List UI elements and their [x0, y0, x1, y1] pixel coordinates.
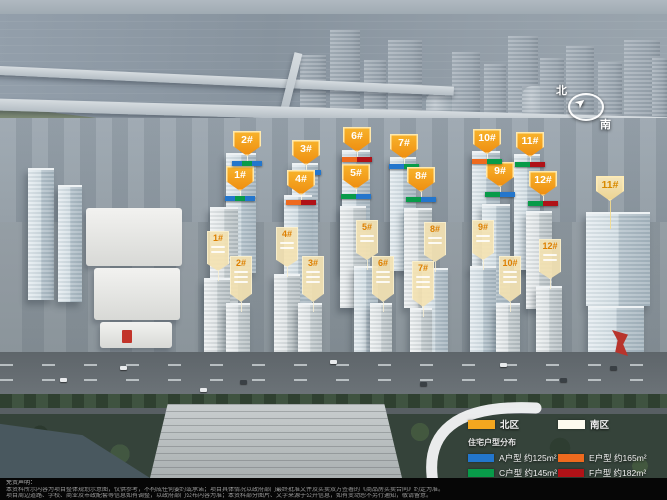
leader-line [287, 267, 288, 277]
building-number-label: 5# [350, 164, 362, 179]
fine-print-line [306, 281, 320, 283]
fine-print-line [280, 247, 294, 249]
car [200, 388, 207, 392]
leader-line [383, 302, 384, 312]
fine-print-line [360, 240, 374, 242]
car [610, 366, 617, 370]
mall-logo-accent [122, 330, 132, 343]
unit-type-segment-A [232, 161, 242, 166]
leader-line [550, 279, 551, 289]
rooftop-unit-type-bar [286, 200, 316, 205]
fine-print-line [476, 235, 490, 237]
rooftop-unit-type-bar [528, 201, 558, 206]
unit-distribution-title: 住宅户型分布 [468, 437, 666, 448]
compass: 北 ➤ 南 [548, 82, 622, 134]
fine-print-line [360, 235, 374, 237]
pin-badge: 4# [287, 170, 315, 195]
pin-badge: 7# [390, 134, 418, 159]
ribbon-badge: 12# [539, 239, 561, 279]
ribbon-badge: 1# [207, 231, 229, 271]
unit-type-segment-C [406, 197, 421, 202]
leader-line [435, 262, 436, 272]
building-tag-south-11: 11# [595, 176, 625, 229]
pin-badge: 10# [473, 129, 501, 154]
building-pin-north-10: 10# [472, 129, 502, 164]
building-pin-north-7: 7# [389, 134, 419, 169]
disclaimer-text: 项目周边道路、学校、商业及市政配套等信息如有调整，以政府部门公布内容为准；本资料… [6, 493, 661, 500]
ribbon-badge: 6# [372, 256, 394, 302]
fine-print-line [428, 242, 442, 244]
building-tag-south-1: 1# [207, 231, 229, 281]
pin-badge: 8# [407, 167, 435, 192]
building-number-label: 10# [499, 256, 521, 268]
unit-a-swatch [468, 454, 494, 462]
unit-a-label: A户型 约125m² [499, 452, 557, 464]
south-zone-swatch [558, 420, 585, 429]
unit-c-swatch [468, 469, 494, 477]
building-pin-north-1: 1# [225, 166, 255, 201]
unit-type-segment-A [389, 164, 404, 169]
background-tower [470, 266, 496, 354]
pin-badge: 9# [486, 162, 514, 187]
unit-type-segment-C [487, 159, 502, 164]
unit-type-segment-F [357, 157, 372, 162]
pin-badge: 6# [343, 127, 371, 152]
fine-print-line [503, 276, 517, 278]
pin-badge: 11# [596, 176, 624, 201]
fine-print-line [376, 276, 390, 278]
car [60, 378, 67, 382]
fine-print-line [428, 237, 442, 239]
rooftop-unit-type-bar [341, 194, 371, 199]
fine-print-line [543, 259, 557, 261]
rooftop-unit-type-bar [485, 192, 515, 197]
compass-north-label: 北 [556, 82, 567, 98]
unit-type-segment-A [225, 196, 235, 201]
legend-units-row-1: A户型 约125m² E户型 约165m² [468, 452, 666, 464]
fine-print-line [234, 276, 248, 278]
fine-print-line [376, 281, 390, 283]
pin-badge: 2# [233, 131, 261, 156]
ribbon-badge: 2# [230, 256, 252, 302]
fine-print-line [280, 242, 294, 244]
building-number-label: 10# [478, 129, 496, 144]
ribbon-badge: 3# [302, 256, 324, 302]
unit-type-segment-C [242, 161, 252, 166]
building-number-label: 1# [207, 231, 229, 243]
fine-print-line [234, 281, 248, 283]
unit-type-segment-C [341, 194, 356, 199]
building-number-label: 4# [276, 227, 298, 239]
fine-print-line [306, 271, 320, 273]
unit-type-segment-F [543, 201, 558, 206]
fine-print-line [211, 251, 225, 253]
disclaimer-bar: 免责声明： 本资料所示内容为项目整体规划示意图，仅供参考，不构成任何要约或承诺；… [0, 478, 667, 500]
unit-type-segment-E [286, 200, 301, 205]
building-number-label: 9# [494, 162, 506, 177]
leader-line [610, 201, 611, 229]
pin-badge: 3# [292, 140, 320, 165]
rooftop-unit-type-bar [406, 197, 436, 202]
unit-type-segment-A [500, 192, 515, 197]
rooftop-unit-type-bar [472, 159, 502, 164]
building-tag-south-10: 10# [499, 256, 521, 312]
building-number-label: 11# [602, 176, 619, 191]
pin-badge: 12# [529, 171, 557, 196]
building-tag-south-3: 3# [302, 256, 324, 312]
building-pin-north-8: 8# [406, 167, 436, 202]
compass-south-label: 南 [600, 116, 611, 132]
fine-print-line [476, 240, 490, 242]
building-number-label: 2# [230, 256, 252, 268]
unit-type-segment-C [528, 201, 543, 206]
fine-print-line [416, 276, 430, 278]
car [500, 363, 507, 367]
pin-badge: 1# [226, 166, 254, 191]
unit-type-segment-C [515, 162, 530, 167]
leader-line [367, 260, 368, 270]
unit-type-segment-C [485, 192, 500, 197]
podium-block [86, 208, 182, 266]
building-tag-south-2: 2# [230, 256, 252, 312]
building-number-label: 4# [295, 170, 307, 185]
building-number-label: 6# [351, 127, 363, 142]
legend-zone-south: 南区 [558, 417, 609, 431]
map-legend: 北区 南区 住宅户型分布 A户型 约125m² E户型 约165m² C户型 约… [468, 417, 666, 482]
building-tag-south-12: 12# [539, 239, 561, 289]
building-pin-north-12: 12# [528, 171, 558, 206]
fine-print-line [376, 271, 390, 273]
building-number-label: 1# [234, 166, 246, 181]
fine-print-line [211, 246, 225, 248]
leader-line [218, 271, 219, 281]
unit-type-segment-F [301, 200, 316, 205]
podium-block [94, 268, 180, 320]
building-number-label: 8# [424, 222, 446, 234]
lane-marking [0, 364, 667, 366]
leader-line [423, 307, 424, 317]
terraced-plaza [150, 404, 402, 478]
fine-print-line [306, 276, 320, 278]
unit-type-segment-E [472, 159, 487, 164]
unit-f-swatch [558, 469, 584, 477]
building-pin-north-6: 6# [342, 127, 372, 162]
podium-block [100, 322, 172, 348]
building-number-label: 3# [300, 140, 312, 155]
legend-unit-e: E户型 约165m² [558, 452, 647, 464]
unit-e-label: E户型 约165m² [589, 452, 647, 464]
building-pin-north-2: 2# [232, 131, 262, 166]
leader-line [313, 302, 314, 312]
building-number-label: 5# [356, 220, 378, 232]
legend-zone-north: 北区 [468, 417, 558, 431]
building-pin-north-9: 9# [485, 162, 515, 197]
ribbon-badge: 5# [356, 220, 378, 260]
building-number-label: 7# [398, 134, 410, 149]
leader-line [483, 260, 484, 270]
ribbon-badge: 8# [424, 222, 446, 262]
building-number-label: 6# [372, 256, 394, 268]
north-zone-label: 北区 [500, 417, 519, 431]
building-number-label: 9# [472, 220, 494, 232]
fine-print-line [416, 286, 430, 288]
site-aerial-rendering: 1#2#3#4#5#6#7#8#9#10#11#12# 1#2#3#4#5#6#… [0, 0, 667, 500]
rooftop-unit-type-bar [342, 157, 372, 162]
background-tower [28, 168, 54, 300]
rooftop-unit-type-bar [232, 161, 262, 166]
building-number-label: 2# [241, 131, 253, 146]
rooftop-unit-type-bar [225, 196, 255, 201]
building-number-label: 3# [302, 256, 324, 268]
car [120, 366, 127, 370]
ribbon-badge: 10# [499, 256, 521, 302]
unit-type-segment-A [421, 197, 436, 202]
ribbon-badge: 4# [276, 227, 298, 267]
leader-line [241, 302, 242, 312]
unit-type-segment-A [245, 196, 255, 201]
car [240, 380, 247, 384]
unit-type-segment-C [235, 196, 245, 201]
rooftop-unit-type-bar [515, 162, 545, 167]
fine-print-line [503, 271, 517, 273]
building-pin-north-11: 11# [515, 132, 545, 167]
unit-type-segment-F [530, 162, 545, 167]
unit-type-segment-A [356, 194, 371, 199]
building-tag-south-9: 9# [472, 220, 494, 270]
unit-e-swatch [558, 454, 584, 462]
background-tower [536, 286, 562, 354]
south-zone-label: 南区 [590, 417, 609, 431]
background-tower [274, 274, 300, 354]
building-number-label: 11# [522, 132, 539, 147]
unit-type-segment-E [342, 157, 357, 162]
legend-unit-a: A户型 约125m² [468, 452, 558, 464]
building-pin-north-4: 4# [286, 170, 316, 205]
car [330, 360, 337, 364]
leader-line [510, 302, 511, 312]
fine-print-line [503, 281, 517, 283]
building-number-label: 12# [534, 171, 552, 186]
building-tag-south-4: 4# [276, 227, 298, 277]
fine-print-line [416, 281, 430, 283]
unit-type-segment-A [252, 161, 262, 166]
building-number-label: 8# [415, 167, 427, 182]
fine-print-line [234, 271, 248, 273]
building-pin-north-5: 5# [341, 164, 371, 199]
building-number-label: 12# [539, 239, 561, 251]
background-tower [58, 185, 82, 302]
north-zone-swatch [468, 420, 495, 429]
building-tag-south-6: 6# [372, 256, 394, 312]
pin-badge: 5# [342, 164, 370, 189]
fine-print-line [543, 254, 557, 256]
ribbon-badge: 9# [472, 220, 494, 260]
building-tag-south-8: 8# [424, 222, 446, 272]
legend-zones-row: 北区 南区 [468, 417, 666, 431]
pin-badge: 11# [516, 132, 544, 157]
